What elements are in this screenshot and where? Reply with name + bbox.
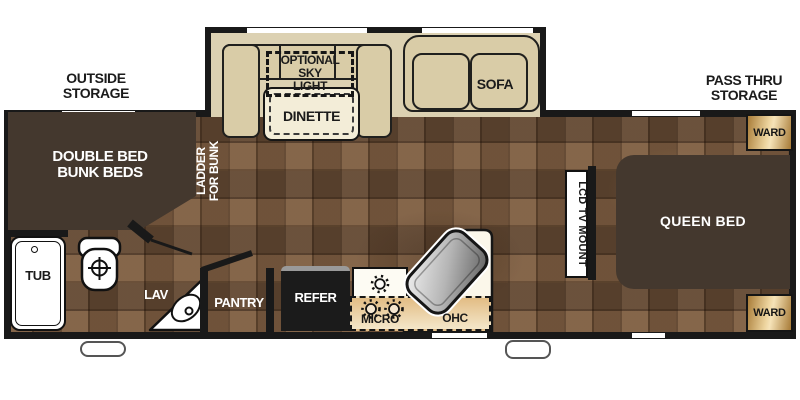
tub [10,236,66,331]
entry-step [505,340,551,359]
outside-storage-label: OUTSIDE STORAGE [38,71,154,101]
queen-bed-label: QUEEN BED [628,214,778,229]
stove-top [352,267,408,298]
window [62,111,135,116]
window [632,111,700,116]
tub-inner-rim [15,241,61,326]
ward-label: WARD [753,307,785,319]
drain-icon [31,246,38,253]
window [632,333,665,338]
refer-label: REFER [294,291,336,305]
wall-pantry-left [200,268,208,332]
sofa-label: SOFA [460,77,530,92]
rv-floorplan: OPTIONAL SKY LIGHT DINETTE SOFA [0,0,800,400]
bunk-beds-label: DOUBLE BED BUNK BEDS [26,149,174,181]
lav-label: LAV [135,288,177,302]
entry-step [80,341,126,357]
wardrobe-top: WARD [746,114,793,151]
refrigerator: REFER [281,266,350,331]
wall-bottom [4,332,796,339]
entry-door-opening [432,333,487,338]
dinette-label: DINETTE [264,109,359,124]
ward-label: WARD [753,127,785,139]
ladder-label: LADDER FOR BUNK [195,130,223,212]
wardrobe-bottom: WARD [746,294,793,332]
lcd-tv-mount-label: LCD TV MOUNT [567,172,587,276]
tub-label: TUB [11,269,65,283]
window-slideout [247,28,367,33]
skylight-label: OPTIONAL SKY LIGHT [266,54,354,93]
window-slideout [422,28,533,33]
tv-mount-wall [588,166,596,280]
pass-thru-storage-label: PASS THRU STORAGE [688,73,800,103]
dinette-bench-left [222,44,260,138]
pantry-label: PANTRY [209,296,269,310]
micro-label: MICRO [351,313,409,326]
dinette-bench-right [356,44,392,138]
ohc-label: OHC [429,312,481,325]
